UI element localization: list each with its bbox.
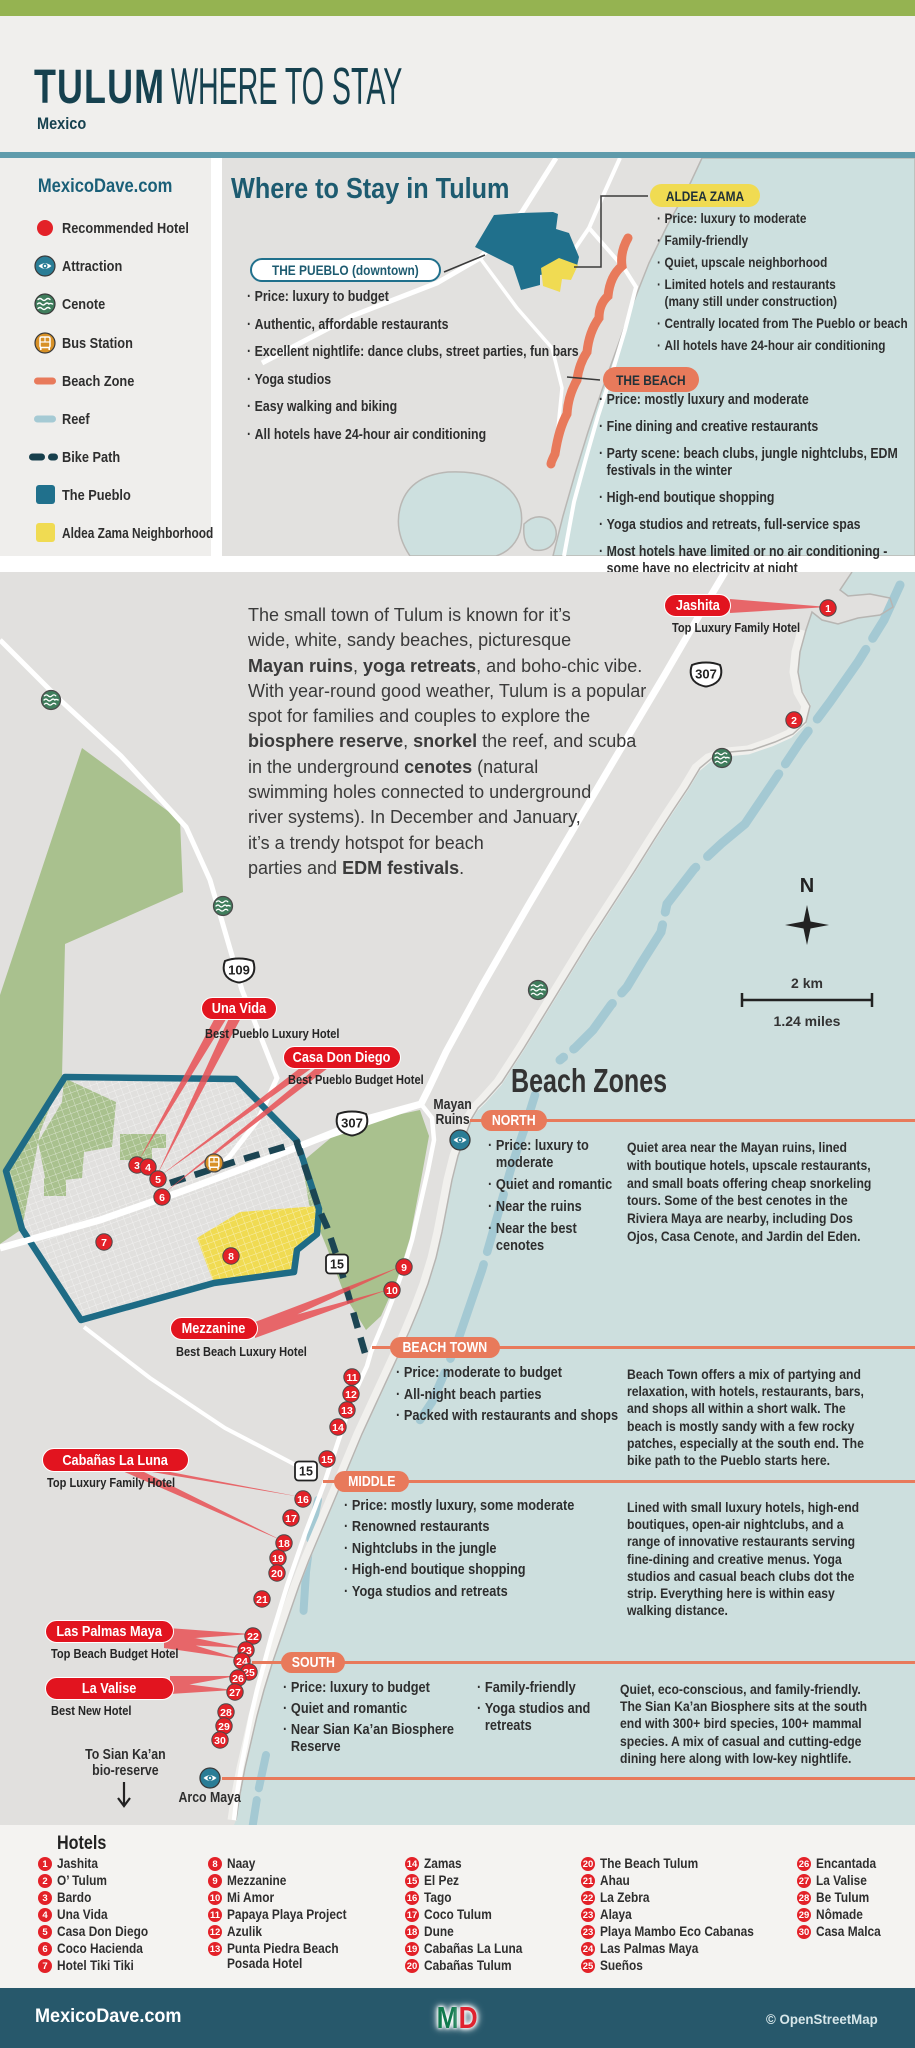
- svg-text:307: 307: [695, 667, 717, 682]
- svg-text:2: 2: [791, 715, 797, 727]
- svg-text:5: 5: [155, 1174, 161, 1186]
- svg-text:1.24 miles: 1.24 miles: [774, 1013, 841, 1029]
- svg-text:18: 18: [278, 1538, 290, 1550]
- svg-text:6: 6: [159, 1192, 165, 1204]
- svg-text:21: 21: [256, 1594, 268, 1606]
- svg-text:7: 7: [101, 1237, 107, 1249]
- svg-text:16: 16: [297, 1494, 309, 1506]
- svg-text:4: 4: [145, 1162, 151, 1174]
- svg-text:20: 20: [271, 1568, 283, 1580]
- svg-text:8: 8: [228, 1251, 234, 1263]
- svg-text:26: 26: [232, 1673, 244, 1685]
- svg-text:15: 15: [299, 1465, 313, 1479]
- svg-text:9: 9: [401, 1262, 407, 1274]
- svg-text:1: 1: [825, 603, 831, 615]
- svg-text:11: 11: [346, 1372, 357, 1384]
- svg-text:15: 15: [321, 1454, 333, 1466]
- svg-text:22: 22: [247, 1631, 259, 1643]
- svg-text:19: 19: [272, 1553, 284, 1565]
- svg-text:17: 17: [285, 1513, 297, 1525]
- svg-text:30: 30: [214, 1735, 226, 1747]
- svg-text:12: 12: [345, 1389, 357, 1401]
- svg-text:15: 15: [330, 1258, 344, 1272]
- svg-text:109: 109: [228, 963, 250, 978]
- svg-text:2 km: 2 km: [791, 975, 823, 991]
- svg-text:N: N: [800, 875, 814, 897]
- svg-text:10: 10: [386, 1285, 398, 1297]
- svg-text:14: 14: [332, 1422, 344, 1434]
- svg-text:307: 307: [341, 1116, 363, 1131]
- svg-text:3: 3: [134, 1160, 140, 1172]
- svg-text:13: 13: [341, 1405, 353, 1417]
- svg-text:29: 29: [218, 1721, 230, 1733]
- svg-text:28: 28: [220, 1707, 232, 1719]
- svg-text:27: 27: [229, 1687, 241, 1699]
